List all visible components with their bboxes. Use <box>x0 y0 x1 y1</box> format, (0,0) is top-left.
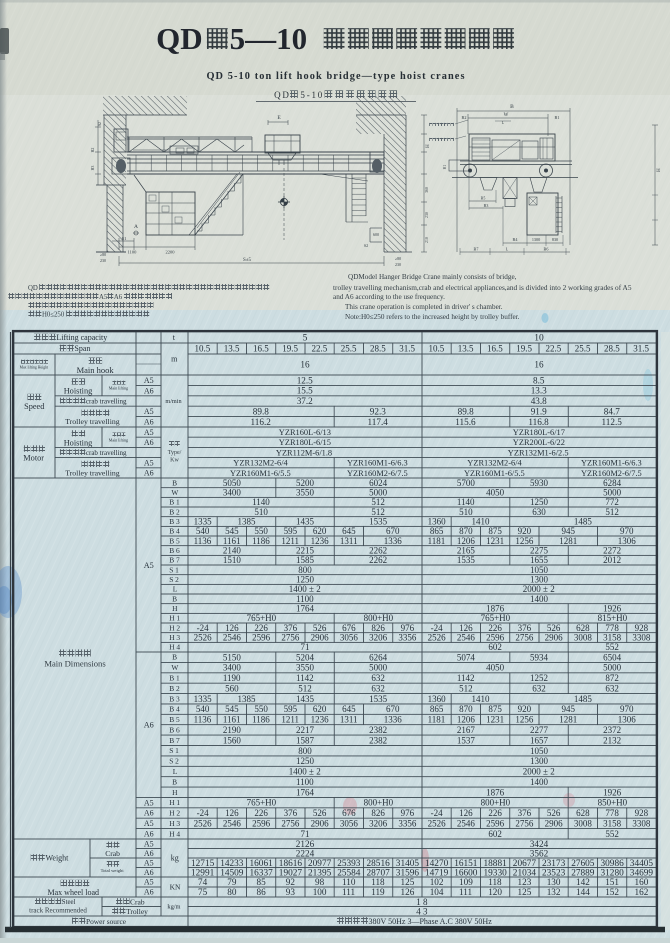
svg-text:126: 126 <box>459 808 473 818</box>
svg-text:976: 976 <box>401 623 415 633</box>
svg-text:111: 111 <box>342 887 356 897</box>
svg-text:37.2: 37.2 <box>297 396 313 406</box>
svg-text:92.3: 92.3 <box>370 407 386 417</box>
svg-text:3400: 3400 <box>223 488 242 498</box>
svg-text:102: 102 <box>430 877 444 887</box>
svg-text:872: 872 <box>605 673 619 683</box>
svg-text:928: 928 <box>635 808 649 818</box>
svg-text:B 2: B 2 <box>169 684 180 693</box>
svg-text:S 1: S 1 <box>169 565 179 574</box>
svg-text:1211: 1211 <box>281 715 299 725</box>
svg-text:226: 226 <box>488 808 502 818</box>
svg-text:1385: 1385 <box>238 694 257 704</box>
svg-text:13.3: 13.3 <box>531 386 547 396</box>
svg-text:2224: 2224 <box>296 848 315 858</box>
svg-text:526: 526 <box>313 623 327 633</box>
svg-text:2906: 2906 <box>311 633 330 643</box>
svg-text:1657: 1657 <box>530 735 549 745</box>
svg-text:945: 945 <box>562 526 576 536</box>
svg-text:130: 130 <box>547 877 561 887</box>
svg-text:B7: B7 <box>474 247 479 252</box>
svg-text:5: 5 <box>303 334 308 344</box>
svg-text:A5: A5 <box>99 294 108 301</box>
svg-text:1655: 1655 <box>530 555 549 565</box>
svg-text:552: 552 <box>605 642 619 652</box>
svg-text:600: 600 <box>373 232 379 237</box>
svg-text:H2: H2 <box>90 148 95 153</box>
svg-text:5934: 5934 <box>530 652 549 662</box>
svg-text:YZR180L-6/15: YZR180L-6/15 <box>279 438 331 447</box>
svg-text:H 4: H 4 <box>169 643 180 652</box>
svg-text:This crane operation is comple: This crane operation is completed in dri… <box>345 303 503 311</box>
svg-text:B 6: B 6 <box>169 725 180 734</box>
svg-text:22.5: 22.5 <box>312 344 328 354</box>
svg-text:1250: 1250 <box>296 756 315 766</box>
svg-text:162: 162 <box>635 887 649 897</box>
svg-text:L: L <box>506 247 509 252</box>
svg-text:1306: 1306 <box>618 715 637 725</box>
svg-text:630: 630 <box>532 507 546 517</box>
svg-text:118: 118 <box>488 877 502 887</box>
svg-text:540: 540 <box>196 704 210 714</box>
svg-text:Note:H0≤250 refers to the incr: Note:H0≤250 refers to the increased heig… <box>345 313 520 321</box>
svg-text:B 3: B 3 <box>169 517 180 526</box>
svg-text:2546: 2546 <box>457 633 476 643</box>
svg-text:778: 778 <box>605 623 619 633</box>
svg-text:Motor: Motor <box>23 454 44 463</box>
svg-text:A6: A6 <box>144 868 154 877</box>
svg-text:1186: 1186 <box>252 536 270 546</box>
svg-text:1050: 1050 <box>530 746 549 756</box>
svg-text:92: 92 <box>286 877 296 887</box>
svg-text:crab travelling: crab travelling <box>86 397 127 405</box>
svg-text:S 1: S 1 <box>169 746 179 755</box>
svg-text:2526: 2526 <box>428 633 447 643</box>
svg-text:1400: 1400 <box>530 594 549 604</box>
svg-text:2372: 2372 <box>603 725 621 735</box>
svg-text:1585: 1585 <box>296 555 315 565</box>
svg-text:1535: 1535 <box>369 694 388 704</box>
svg-text:552: 552 <box>605 829 619 839</box>
svg-text:830: 830 <box>552 237 558 242</box>
svg-text:A5: A5 <box>144 376 154 385</box>
svg-text:1336: 1336 <box>384 715 403 725</box>
svg-text:3308: 3308 <box>632 633 651 643</box>
svg-text:152: 152 <box>605 887 619 897</box>
svg-text:B: B <box>172 777 177 786</box>
svg-text:1400: 1400 <box>530 777 549 787</box>
svg-text:3550: 3550 <box>296 488 315 498</box>
svg-text:-24: -24 <box>431 808 443 818</box>
svg-text:1385: 1385 <box>238 517 257 527</box>
svg-text:1360: 1360 <box>428 694 447 704</box>
svg-text:B 6: B 6 <box>169 546 180 555</box>
svg-text:1140: 1140 <box>457 497 475 507</box>
svg-text:31.5: 31.5 <box>399 344 415 354</box>
svg-text:1161: 1161 <box>223 536 241 546</box>
svg-text:A5: A5 <box>144 428 154 437</box>
svg-text:2382: 2382 <box>369 725 387 735</box>
svg-text:2262: 2262 <box>369 546 387 556</box>
svg-text:1926: 1926 <box>603 787 622 797</box>
svg-text:928: 928 <box>635 623 649 633</box>
svg-text:778: 778 <box>605 808 619 818</box>
svg-text:S 2: S 2 <box>169 757 179 766</box>
svg-text:5000: 5000 <box>603 488 622 498</box>
svg-text:100: 100 <box>313 887 327 897</box>
svg-text:Trolley travelling: Trolley travelling <box>65 417 120 426</box>
svg-text:5930: 5930 <box>530 478 549 488</box>
svg-text:620: 620 <box>313 526 327 536</box>
svg-text:645: 645 <box>342 526 356 536</box>
svg-text:A5: A5 <box>144 561 154 570</box>
svg-text:1535: 1535 <box>369 517 388 527</box>
svg-text:A6: A6 <box>144 809 154 818</box>
svg-text:43.8: 43.8 <box>531 396 547 406</box>
svg-text:2132: 2132 <box>603 735 621 745</box>
svg-text:670: 670 <box>386 704 400 714</box>
svg-text:1181: 1181 <box>428 715 446 725</box>
svg-text:116.2: 116.2 <box>251 417 272 427</box>
svg-text:trolley travelling mechanism,c: trolley travelling mechanism,crab and el… <box>333 283 632 292</box>
svg-text:5-10: 5-10 <box>300 90 324 100</box>
svg-text:Total weight: Total weight <box>101 868 125 873</box>
svg-text:1181: 1181 <box>428 536 446 546</box>
svg-text:376: 376 <box>518 808 532 818</box>
svg-text:2526: 2526 <box>428 819 447 829</box>
svg-text:632: 632 <box>371 673 385 683</box>
svg-text:3400: 3400 <box>223 663 242 673</box>
svg-text:1236: 1236 <box>311 715 330 725</box>
svg-text:875: 875 <box>488 526 502 536</box>
svg-text:H 4: H 4 <box>169 829 180 838</box>
svg-text:S1: S1 <box>122 236 127 241</box>
svg-text:B6: B6 <box>544 247 549 252</box>
svg-text:m/min: m/min <box>165 398 181 405</box>
svg-text:≥80: ≥80 <box>395 256 401 261</box>
svg-text:A6: A6 <box>144 386 154 395</box>
svg-text:3308: 3308 <box>632 819 651 829</box>
svg-text:1231: 1231 <box>486 536 504 546</box>
svg-text:526: 526 <box>547 623 561 633</box>
svg-text:1190: 1190 <box>223 673 241 683</box>
svg-text:595: 595 <box>284 526 298 536</box>
svg-text:28.5: 28.5 <box>370 344 386 354</box>
svg-text:4050: 4050 <box>486 488 505 498</box>
svg-text:1587: 1587 <box>296 735 315 745</box>
svg-text:1485: 1485 <box>574 517 593 527</box>
svg-text:89.8: 89.8 <box>253 407 269 417</box>
svg-text:2217: 2217 <box>296 725 315 735</box>
svg-text:670: 670 <box>386 526 400 536</box>
svg-text:111: 111 <box>459 887 473 897</box>
svg-text:71: 71 <box>301 829 310 839</box>
svg-text:512: 512 <box>459 683 473 693</box>
svg-text:3424: 3424 <box>530 839 549 849</box>
svg-text:Main Dimensions: Main Dimensions <box>44 659 106 669</box>
svg-text:2596: 2596 <box>252 633 271 643</box>
svg-text:93: 93 <box>286 887 296 897</box>
svg-text:2167: 2167 <box>457 725 476 735</box>
svg-text:2262: 2262 <box>369 555 387 565</box>
svg-text:144: 144 <box>576 887 590 897</box>
svg-text:Main hook: Main hook <box>77 365 115 375</box>
svg-text:YZR132M1-6/2.5: YZR132M1-6/2.5 <box>508 448 569 457</box>
svg-text:1281: 1281 <box>559 536 577 546</box>
svg-text:5000: 5000 <box>603 663 622 673</box>
svg-text:602: 602 <box>488 642 502 652</box>
svg-text:1311: 1311 <box>340 715 358 725</box>
svg-text:595: 595 <box>284 704 298 714</box>
svg-text:YZR180L-6/17: YZR180L-6/17 <box>513 428 565 437</box>
svg-text:5074: 5074 <box>457 652 476 662</box>
svg-text:112.5: 112.5 <box>602 417 623 427</box>
svg-text:1410: 1410 <box>472 517 491 527</box>
svg-text:YZR160M1-6/5.5: YZR160M1-6/5.5 <box>464 469 525 478</box>
svg-text:2012: 2012 <box>603 555 621 565</box>
svg-text:1 8: 1 8 <box>416 897 428 907</box>
svg-text:A6: A6 <box>144 721 154 730</box>
svg-text:1876: 1876 <box>486 604 505 614</box>
svg-text:track Recommended: track Recommended <box>29 907 87 915</box>
svg-text:Weight: Weight <box>46 854 70 863</box>
svg-text:1256: 1256 <box>515 715 534 725</box>
svg-text:126: 126 <box>225 808 239 818</box>
svg-text:2756: 2756 <box>515 819 534 829</box>
svg-text:Main lifting: Main lifting <box>109 437 128 442</box>
svg-text:QDModel Hanger Bridge Crane: QDModel Hanger Bridge Crane mainly consi… <box>348 273 517 281</box>
svg-text:2906: 2906 <box>311 819 330 829</box>
svg-text:B 3: B 3 <box>169 694 180 703</box>
svg-text:H 1: H 1 <box>169 798 180 807</box>
svg-text:2906: 2906 <box>545 633 564 643</box>
svg-text:3008: 3008 <box>574 819 593 829</box>
svg-text:870: 870 <box>459 704 473 714</box>
svg-text:2546: 2546 <box>223 633 242 643</box>
svg-text:Crab: Crab <box>105 849 120 858</box>
svg-text:H0≤250: H0≤250 <box>42 312 65 319</box>
svg-text:75: 75 <box>198 887 208 897</box>
svg-text:5050: 5050 <box>223 478 242 488</box>
svg-text:1335: 1335 <box>194 517 213 527</box>
svg-text:H 1: H 1 <box>169 614 180 623</box>
svg-text:YZR160M1-6/5.5: YZR160M1-6/5.5 <box>230 469 291 478</box>
svg-text:800+H0: 800+H0 <box>481 798 511 808</box>
svg-text:2000 ± 2: 2000 ± 2 <box>523 767 555 777</box>
svg-text:2526: 2526 <box>194 633 213 643</box>
svg-text:628: 628 <box>576 623 590 633</box>
svg-text:132: 132 <box>547 887 561 897</box>
svg-text:A6: A6 <box>144 830 154 839</box>
svg-text:YZR160M1-6/6.3: YZR160M1-6/6.3 <box>347 459 408 468</box>
svg-text:B: B <box>510 104 514 110</box>
svg-text:19.5: 19.5 <box>516 344 532 354</box>
svg-text:2272: 2272 <box>603 546 621 556</box>
svg-text:H 2: H 2 <box>169 809 180 818</box>
svg-text:602: 602 <box>488 829 502 839</box>
svg-text:1250: 1250 <box>296 575 315 585</box>
svg-text:A6: A6 <box>144 418 154 427</box>
svg-text:S 2: S 2 <box>169 575 179 584</box>
svg-text:3562: 3562 <box>530 848 549 858</box>
svg-text:1136: 1136 <box>194 536 212 546</box>
svg-text:632: 632 <box>371 683 385 693</box>
svg-text:1050: 1050 <box>530 565 549 575</box>
svg-text:A5: A5 <box>144 798 154 807</box>
svg-text:226: 226 <box>254 623 268 633</box>
svg-text:875: 875 <box>488 704 502 714</box>
svg-text:Main lifting: Main lifting <box>109 386 128 391</box>
svg-text:Speed: Speed <box>24 402 45 411</box>
svg-text:1136: 1136 <box>194 715 212 725</box>
svg-text:865: 865 <box>430 704 444 714</box>
svg-text:1400 ± 2: 1400 ± 2 <box>289 767 321 777</box>
svg-text:3550: 3550 <box>296 663 315 673</box>
svg-text:380V 50Hz 3—Phase A.C 380V: 380V 50Hz 3—Phase A.C 380V 50Hz <box>369 917 493 926</box>
svg-text:5700: 5700 <box>457 478 476 488</box>
svg-text:2215: 2215 <box>296 546 315 556</box>
svg-text:632: 632 <box>532 683 546 693</box>
svg-text:920: 920 <box>518 704 532 714</box>
svg-text:116.8: 116.8 <box>528 417 549 427</box>
svg-text:kg: kg <box>171 854 179 863</box>
svg-text:85: 85 <box>257 877 267 887</box>
svg-text:B: B <box>172 478 177 487</box>
svg-text:4050: 4050 <box>486 663 505 673</box>
svg-text:230: 230 <box>100 258 106 263</box>
svg-text:Type/: Type/ <box>168 450 182 456</box>
svg-text:5000: 5000 <box>369 663 388 673</box>
svg-text:92: 92 <box>97 122 102 126</box>
svg-text:YZR200L-6/22: YZR200L-6/22 <box>513 438 565 447</box>
svg-text:151: 151 <box>605 877 619 887</box>
svg-text:Lifting capacity: Lifting capacity <box>56 333 107 342</box>
svg-text:3356: 3356 <box>398 819 417 829</box>
svg-text:1876: 1876 <box>486 787 505 797</box>
svg-text:512: 512 <box>605 507 619 517</box>
svg-text:84.7: 84.7 <box>604 407 620 417</box>
svg-text:125: 125 <box>401 877 415 887</box>
svg-text:1100: 1100 <box>296 594 314 604</box>
svg-text:Steel: Steel <box>62 899 76 906</box>
svg-text:25.5: 25.5 <box>341 344 357 354</box>
svg-text:125: 125 <box>518 887 532 897</box>
svg-text:865: 865 <box>430 526 444 536</box>
svg-text:3158: 3158 <box>603 819 622 829</box>
svg-text:A5: A5 <box>144 407 154 416</box>
svg-text:1206: 1206 <box>457 536 476 546</box>
svg-text:3056: 3056 <box>340 819 359 829</box>
svg-text:B2: B2 <box>462 115 467 120</box>
svg-text:B 4: B 4 <box>169 705 180 714</box>
svg-text:Power source: Power source <box>86 917 127 926</box>
svg-text:H 3: H 3 <box>169 633 180 642</box>
svg-text:31.5: 31.5 <box>633 344 649 354</box>
svg-text:71: 71 <box>301 642 310 652</box>
svg-text:W: W <box>171 488 178 497</box>
svg-text:800: 800 <box>298 746 312 756</box>
svg-text:126: 126 <box>225 623 239 633</box>
svg-text:1236: 1236 <box>311 536 330 546</box>
svg-text:2190: 2190 <box>223 725 242 735</box>
svg-text:3206: 3206 <box>369 819 388 829</box>
svg-text:1142: 1142 <box>457 673 475 683</box>
svg-text:1142: 1142 <box>296 673 314 683</box>
svg-text:A6: A6 <box>144 888 154 897</box>
svg-text:3356: 3356 <box>398 633 417 643</box>
svg-text:1300: 1300 <box>530 756 549 766</box>
svg-text:10.5: 10.5 <box>429 344 445 354</box>
svg-text:A5: A5 <box>144 819 154 828</box>
svg-text:1211: 1211 <box>281 536 299 546</box>
svg-text:W: W <box>171 663 178 672</box>
svg-text:1140: 1140 <box>252 497 270 507</box>
svg-text:B1: B1 <box>555 115 560 120</box>
svg-text:3158: 3158 <box>603 633 622 643</box>
svg-text:142: 142 <box>576 877 590 887</box>
svg-text:545: 545 <box>225 526 239 536</box>
svg-text:2756: 2756 <box>281 633 300 643</box>
svg-text:W: W <box>504 113 509 118</box>
svg-text:1560: 1560 <box>223 735 242 745</box>
svg-text:2546: 2546 <box>223 819 242 829</box>
svg-text:B 2: B 2 <box>169 507 180 516</box>
svg-text:86: 86 <box>257 887 267 897</box>
svg-text:826: 826 <box>371 808 385 818</box>
svg-text:3056: 3056 <box>340 633 359 643</box>
svg-text:123: 123 <box>518 877 532 887</box>
svg-text:16.5: 16.5 <box>253 344 269 354</box>
svg-text:1252: 1252 <box>530 673 548 683</box>
svg-text:230: 230 <box>425 212 429 218</box>
svg-text:560: 560 <box>225 683 239 693</box>
svg-text:A6: A6 <box>144 438 154 447</box>
svg-text:1336: 1336 <box>384 536 403 546</box>
svg-text:1300: 1300 <box>532 237 540 242</box>
svg-text:1250: 1250 <box>530 497 549 507</box>
svg-text:2382: 2382 <box>369 735 387 745</box>
svg-text:QD: QD <box>156 21 203 56</box>
svg-text:A6: A6 <box>144 849 154 858</box>
svg-text:1100: 1100 <box>296 777 314 787</box>
svg-text:376: 376 <box>284 808 298 818</box>
svg-text:B: B <box>172 594 177 603</box>
svg-text:510: 510 <box>254 507 268 517</box>
svg-text:1926: 1926 <box>603 604 622 614</box>
svg-text:-24: -24 <box>431 623 443 633</box>
svg-text:815+H0: 815+H0 <box>598 613 628 623</box>
svg-text:5200: 5200 <box>296 478 315 488</box>
svg-text:Span: Span <box>74 344 90 353</box>
svg-text:6024: 6024 <box>369 478 388 488</box>
svg-text:19.5: 19.5 <box>282 344 298 354</box>
svg-text:YZR132M2-6/4: YZR132M2-6/4 <box>467 459 522 468</box>
svg-text:2756: 2756 <box>281 819 300 829</box>
svg-text:-24: -24 <box>197 808 209 818</box>
svg-text:5204: 5204 <box>296 652 315 662</box>
svg-text:540: 540 <box>196 526 210 536</box>
svg-text:L: L <box>173 585 178 594</box>
svg-text:16: 16 <box>534 360 544 370</box>
svg-text:1764: 1764 <box>296 787 315 797</box>
svg-text:800: 800 <box>298 565 312 575</box>
svg-text:B5: B5 <box>481 196 486 201</box>
svg-text:976: 976 <box>401 808 415 818</box>
svg-text:110: 110 <box>342 877 356 887</box>
svg-text:230: 230 <box>395 262 401 267</box>
svg-text:B: B <box>172 653 177 662</box>
svg-text:2906: 2906 <box>545 819 564 829</box>
